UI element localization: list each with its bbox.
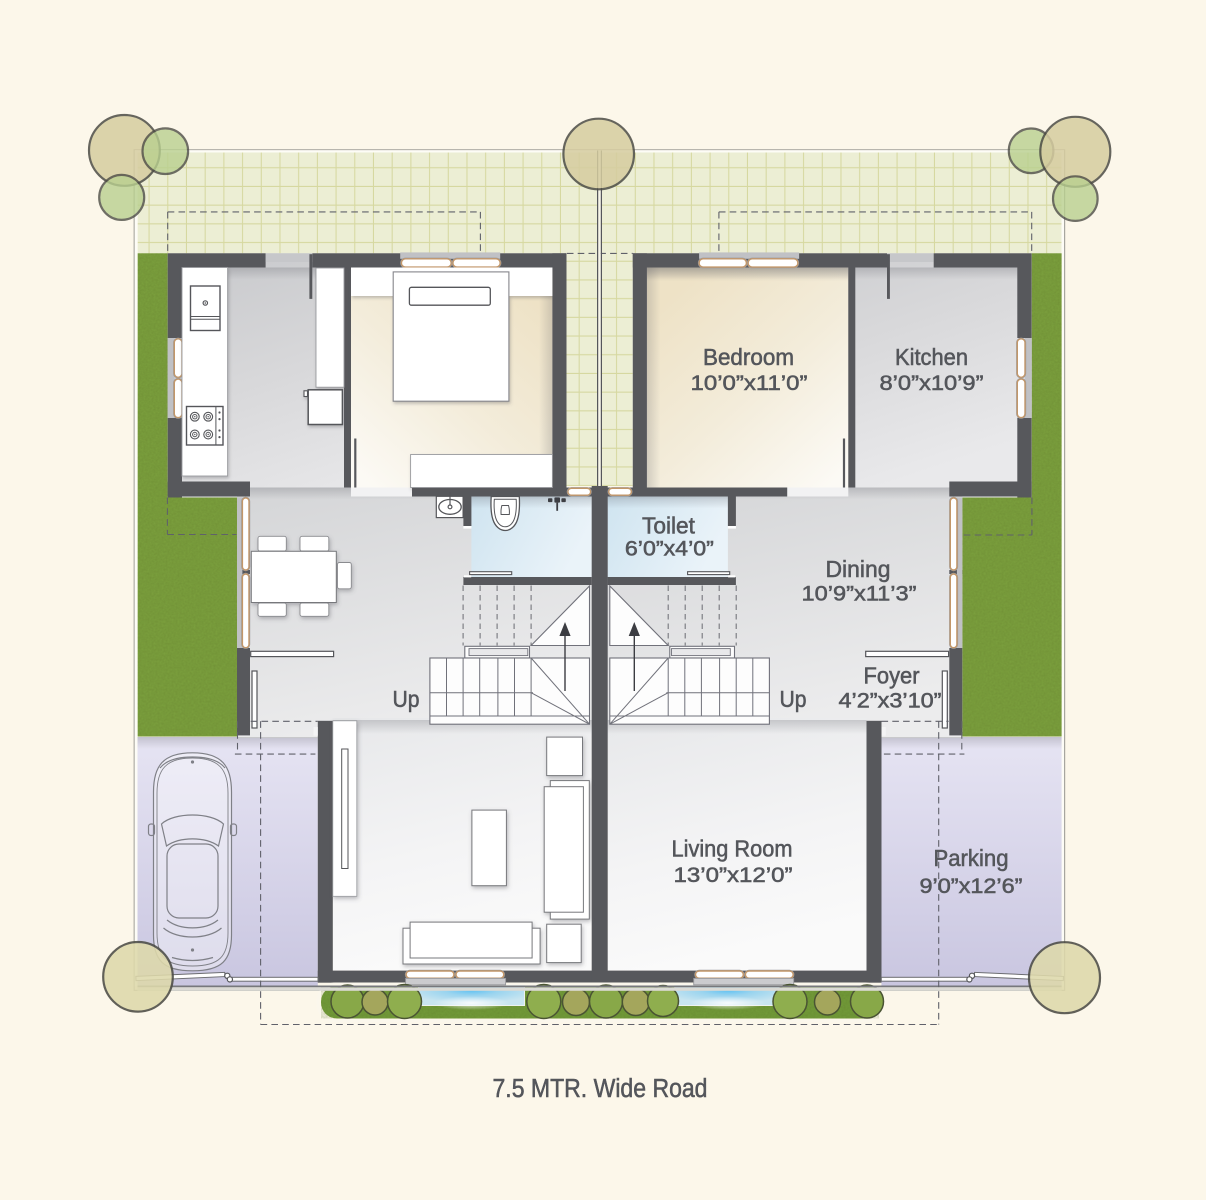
svg-text:Parking: Parking xyxy=(934,845,1009,871)
svg-text:Up: Up xyxy=(780,686,807,712)
svg-text:10’0”x11’0”: 10’0”x11’0” xyxy=(691,372,808,395)
svg-text:Dining: Dining xyxy=(826,556,891,582)
svg-text:Kitchen: Kitchen xyxy=(895,344,968,370)
svg-text:4’2”x3’10”: 4’2”x3’10” xyxy=(839,690,942,713)
svg-text:Bedroom: Bedroom xyxy=(703,344,794,370)
svg-text:9’0”x12’6”: 9’0”x12’6” xyxy=(920,875,1023,898)
svg-text:6’0”x4’0”: 6’0”x4’0” xyxy=(625,538,714,561)
svg-text:Toilet: Toilet xyxy=(642,513,696,539)
svg-text:8’0”x10’9”: 8’0”x10’9” xyxy=(880,372,984,395)
svg-text:Living Room: Living Room xyxy=(672,836,793,862)
svg-text:Foyer: Foyer xyxy=(864,663,920,689)
svg-text:10’9”x11’3”: 10’9”x11’3” xyxy=(802,583,917,606)
svg-text:7.5 MTR. Wide Road: 7.5 MTR. Wide Road xyxy=(493,1075,708,1103)
svg-text:Up: Up xyxy=(393,686,420,712)
svg-text:13’0”x12’0”: 13’0”x12’0” xyxy=(674,864,793,887)
